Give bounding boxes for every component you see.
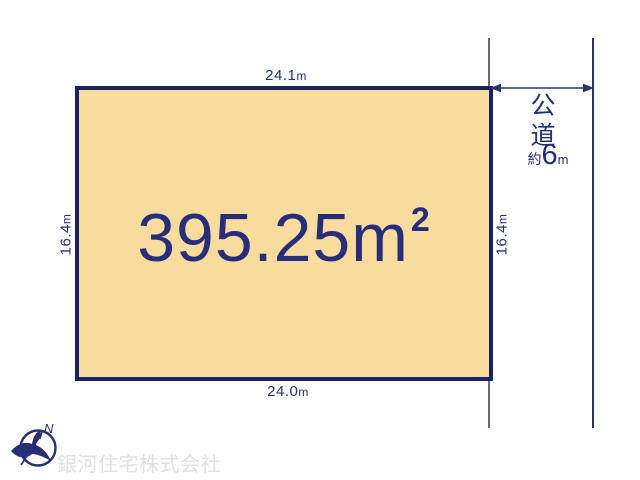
dimension-bottom: 24.0m	[246, 383, 330, 400]
road-width-unit: m	[558, 152, 569, 167]
dimension-top: 24.1m	[244, 67, 328, 84]
plot-area-superscript: 2	[411, 201, 431, 239]
dimension-bottom-unit: m	[298, 385, 309, 399]
dimension-left-value: 16.4	[58, 224, 75, 255]
compass-north-icon: N	[8, 416, 64, 476]
plot-area-unit: m	[351, 200, 409, 276]
dimension-left-unit: m	[60, 214, 74, 225]
plot-area-label: 395.25m2	[137, 204, 431, 272]
dimension-top-unit: m	[296, 69, 307, 83]
land-plot: 395.25m2	[75, 86, 493, 381]
road-width-label: 約6m	[516, 139, 580, 172]
land-plot-diagram: 395.25m2 24.1m 24.0m 16.4m 16.4m 公道 約6m …	[0, 0, 640, 480]
dimension-bottom-value: 24.0	[267, 383, 298, 400]
road-far-edge-line	[592, 38, 594, 428]
compass-north-label: N	[44, 421, 54, 436]
dimension-left: 16.4m	[58, 203, 75, 267]
road-width-prefix: 約	[528, 151, 542, 167]
plot-area-value: 395.25	[137, 200, 351, 276]
road-width-value: 6	[542, 139, 558, 171]
dimension-top-value: 24.1	[265, 67, 296, 84]
dimension-right: 16.4m	[494, 203, 511, 267]
company-watermark: 銀河住宅株式会社	[57, 448, 221, 477]
dimension-right-unit: m	[496, 214, 510, 225]
dimension-right-value: 16.4	[494, 224, 511, 255]
